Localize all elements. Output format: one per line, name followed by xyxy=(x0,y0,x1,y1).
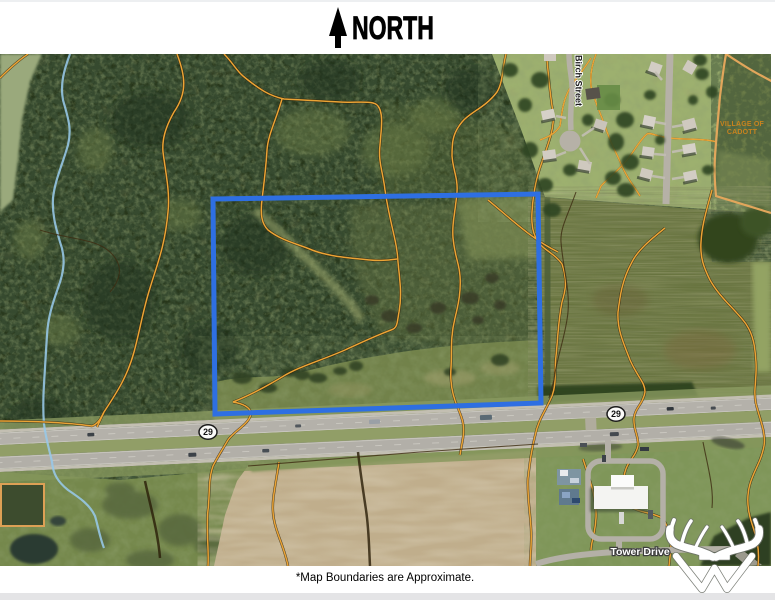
svg-text:CADOTT: CADOTT xyxy=(727,129,758,136)
svg-text:29: 29 xyxy=(611,409,621,419)
svg-text:VILLAGE OF: VILLAGE OF xyxy=(720,121,765,128)
svg-text:NORTH: NORTH xyxy=(352,10,434,46)
svg-text:Birch Street: Birch Street xyxy=(574,55,584,106)
svg-text:29: 29 xyxy=(203,427,213,437)
svg-text:*Map Boundaries are Approximat: *Map Boundaries are Approximate. xyxy=(296,572,474,584)
svg-text:Tower Drive: Tower Drive xyxy=(610,546,669,558)
